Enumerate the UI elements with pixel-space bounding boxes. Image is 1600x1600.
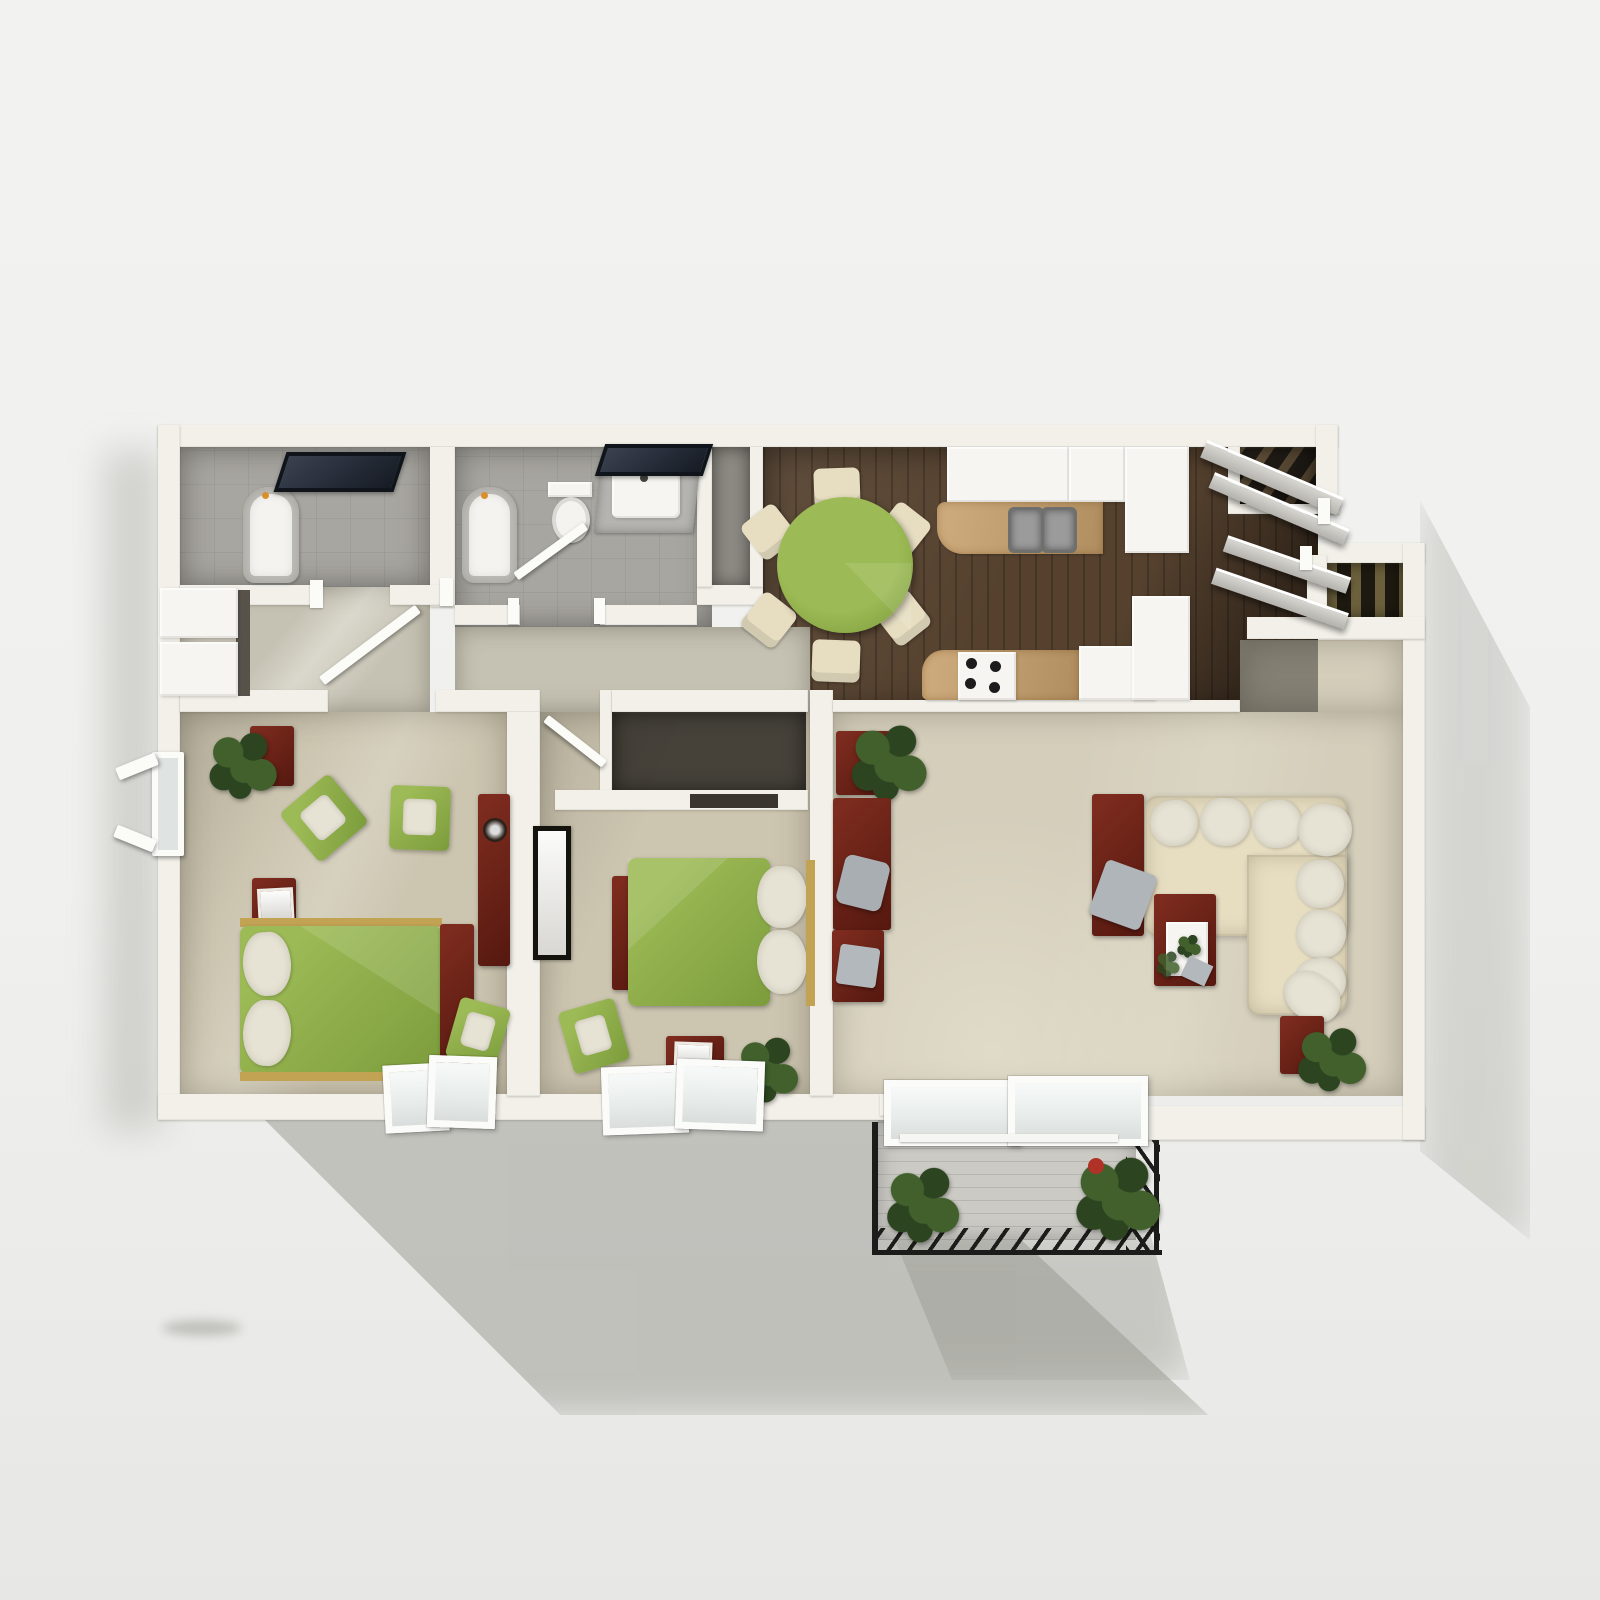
corner-cabinet	[1132, 596, 1190, 700]
closet-door-lower	[160, 642, 238, 696]
wall-bathroom-2-bottom-b	[600, 605, 697, 625]
shadow-smudge	[162, 1320, 242, 1336]
balcony-railing-bottom-rail	[872, 1250, 1162, 1255]
bathtub-2	[462, 487, 517, 583]
wall-kitchen-bottom	[833, 700, 1240, 712]
stove-burner-2	[990, 661, 1001, 672]
framed-art-bedroom-2	[533, 826, 571, 960]
storage-box-gray	[835, 943, 880, 988]
door-jamb-bedroom-1-b	[440, 578, 453, 606]
sink-basin-left	[1008, 507, 1044, 553]
bed-2-headboard	[806, 860, 815, 1006]
dresser-bowl	[483, 818, 507, 842]
linen-closet-floor	[712, 447, 750, 587]
closet-interior-strip	[236, 590, 250, 696]
armchair-cushion	[298, 793, 347, 843]
toilet-tank	[548, 482, 592, 497]
door-jamb-bathroom-2-b	[594, 598, 605, 624]
refrigerator	[1125, 447, 1189, 553]
door-jamb-bathroom-2-a	[508, 598, 519, 624]
bedroom-2-window-b	[675, 1058, 765, 1131]
plant-end-table	[1294, 1026, 1370, 1092]
dining-chair-south	[811, 639, 860, 683]
upper-cabinet-right	[1069, 447, 1125, 502]
wall-top	[158, 425, 1338, 447]
armchair-cushion	[460, 1011, 497, 1052]
wall-bottom-right	[1130, 1106, 1425, 1140]
bedroom-1-side-window-glass	[158, 758, 178, 850]
entry-door-jamb-1	[1318, 498, 1330, 524]
upper-cabinet-left	[947, 447, 1069, 502]
plant-bedroom-1	[206, 730, 280, 800]
plant-console-hall	[848, 722, 930, 802]
stove-burner-1	[966, 658, 977, 669]
entry-door-jamb-2	[1300, 546, 1312, 570]
stove-burner-4	[989, 682, 1000, 693]
bathroom-1-mirror	[274, 452, 407, 492]
armchair-cushion	[403, 798, 437, 835]
bathroom-2-mirror	[595, 444, 713, 476]
balcony-plant-pot	[1088, 1158, 1104, 1174]
balcony-plant-left	[884, 1164, 962, 1244]
sliding-door-track	[900, 1134, 1118, 1142]
bathtub-1-faucet	[262, 492, 269, 499]
coffee-table-flowers	[1156, 950, 1180, 978]
wall-bedroom-1-top-b	[436, 690, 540, 712]
sink-basin-right	[1041, 507, 1077, 553]
wall-closet-top	[612, 690, 808, 712]
armchair-bedroom-1-b	[389, 785, 451, 851]
closet-door-upper	[160, 588, 238, 638]
bathtub-1	[243, 487, 299, 583]
bedroom-1-window-b	[427, 1055, 497, 1129]
armchair-cushion	[573, 1013, 613, 1056]
closet-door-opening	[690, 794, 778, 808]
stove-burner-3	[965, 678, 976, 689]
balcony-plant-right	[1072, 1154, 1164, 1242]
wall-linen-closet-bottom	[697, 585, 763, 605]
building-shadow-right	[1420, 500, 1530, 1240]
wall-closet-left	[600, 690, 612, 792]
door-jamb-bedroom-1-a	[310, 580, 323, 608]
bathtub-2-faucet	[481, 492, 488, 499]
floor-plan-rendering	[0, 0, 1600, 1600]
